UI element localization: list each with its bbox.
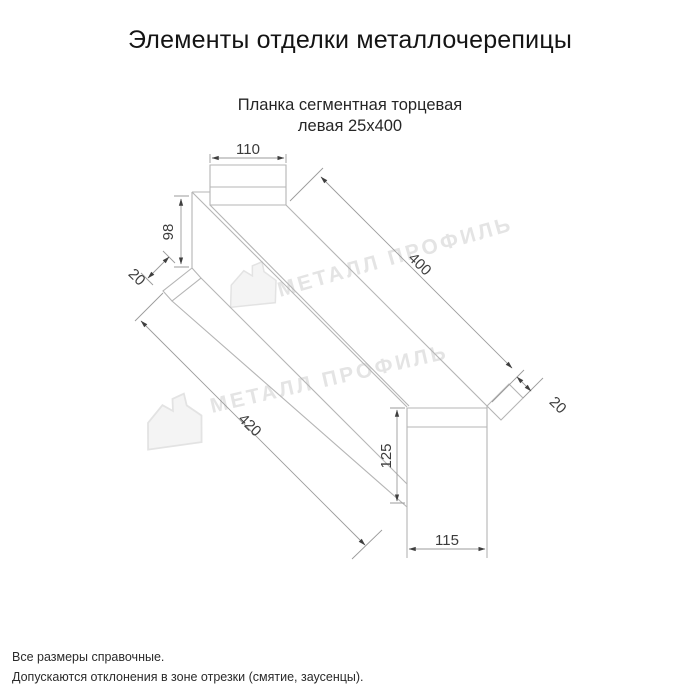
strip-bottom-edge-2 — [172, 301, 407, 507]
top-detail-rect — [210, 165, 286, 205]
dimension-lines — [135, 154, 543, 559]
watermark-text: МЕТАЛЛ ПРОФИЛЬ — [275, 213, 516, 302]
dim-label-bottom-length: 420 — [235, 411, 265, 441]
dim-label-end-height: 125 — [378, 443, 395, 468]
dim-label-end-width: 115 — [435, 532, 459, 549]
dim-label-left-fold: 20 — [125, 265, 149, 289]
dim-line-20-right — [517, 377, 531, 391]
left-fold-flap — [163, 268, 201, 301]
dim-label-right-fold: 20 — [546, 393, 570, 417]
strip-bottom-edge-1 — [201, 278, 407, 484]
ext-line-20-right — [523, 378, 543, 398]
dim-line-20-left — [148, 257, 169, 278]
dim-label-left-height: 98 — [160, 224, 177, 241]
drawing-page: Элементы отделки металлочерепицы Планка … — [0, 0, 700, 700]
brand-house-logo-icon — [141, 392, 205, 450]
footer-note-1: Все размеры справочные. — [12, 650, 164, 664]
technical-drawing: МЕТАЛЛ ПРОФИЛЬ МЕТАЛЛ ПРОФИЛЬ — [0, 0, 700, 700]
brand-house-logo-icon — [226, 261, 278, 308]
footer-note-2: Допускаются отклонения в зоне отрезки (с… — [12, 670, 364, 684]
dim-label-top-width: 110 — [236, 141, 260, 158]
